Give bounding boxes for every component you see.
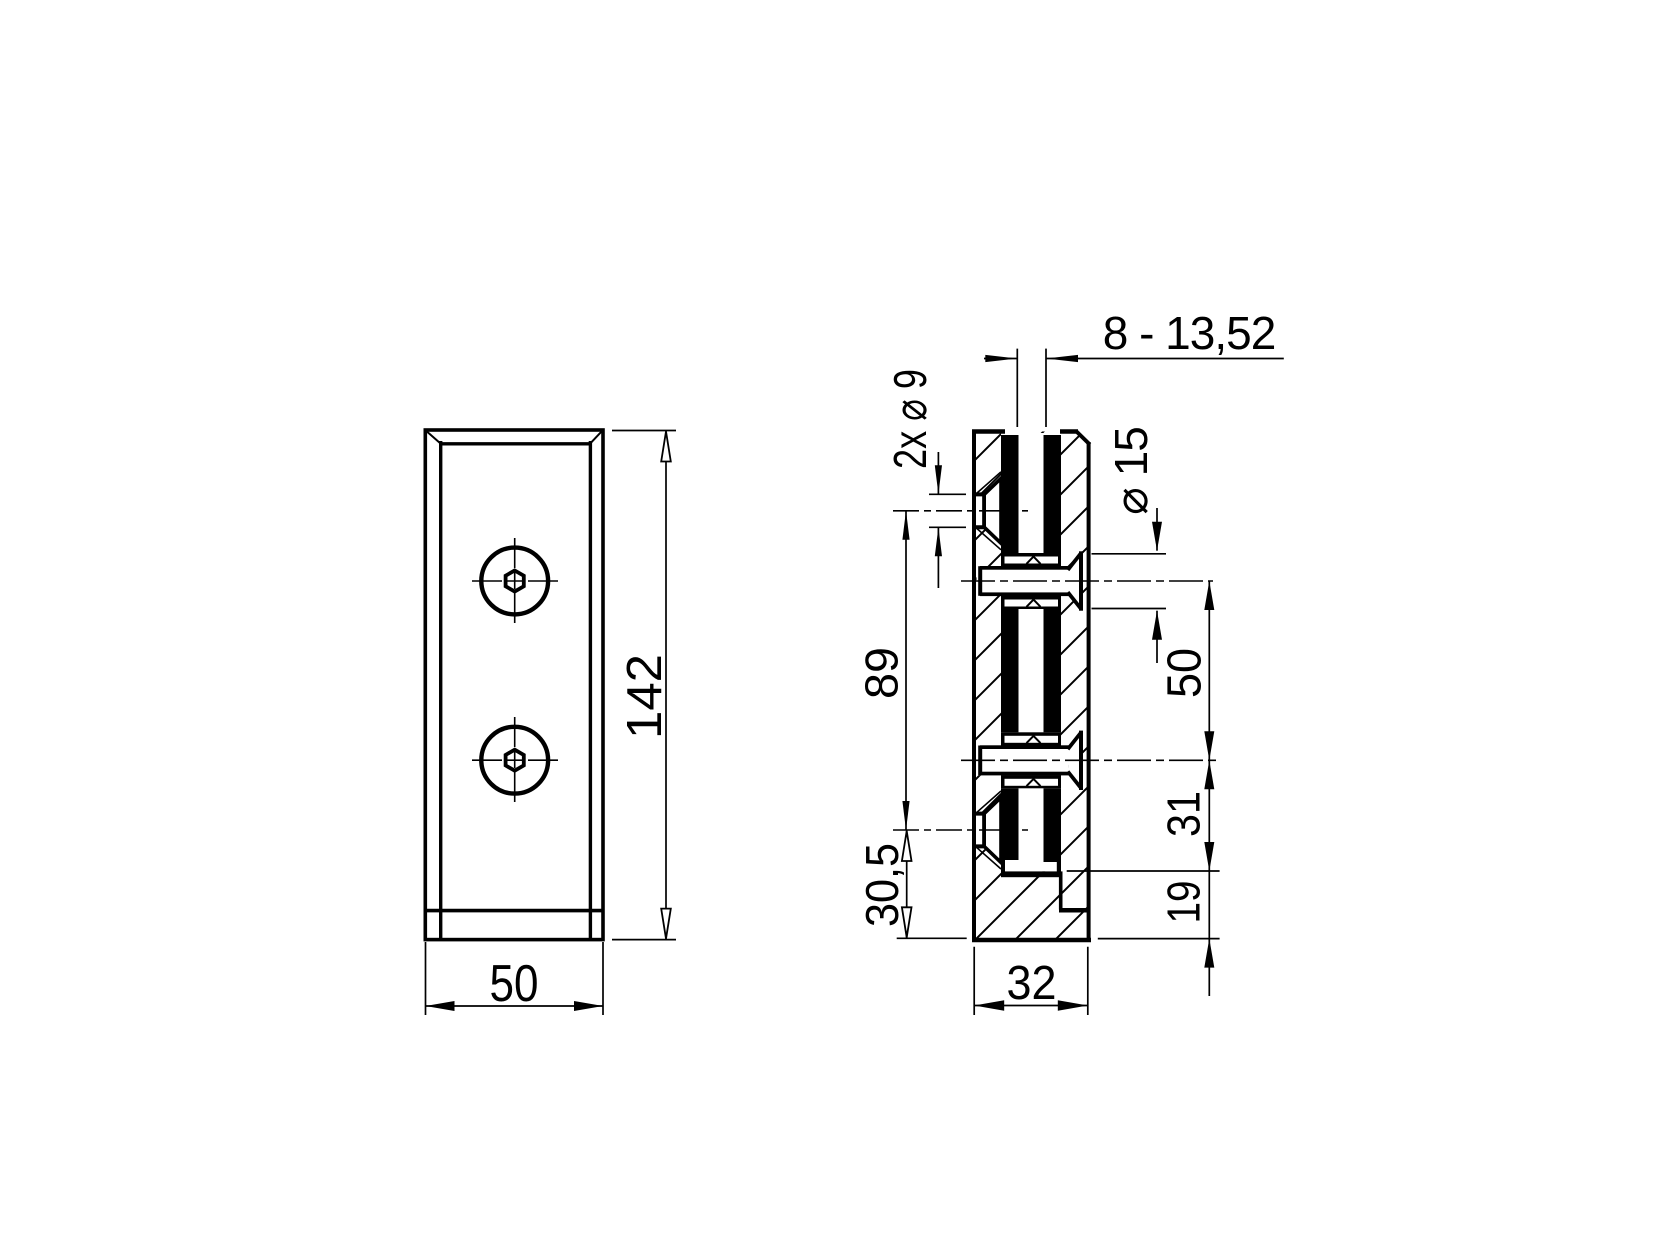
svg-text:⌀ 15: ⌀ 15 bbox=[1105, 427, 1157, 515]
svg-text:19: 19 bbox=[1158, 881, 1210, 924]
svg-text:8 - 13,52: 8 - 13,52 bbox=[1103, 307, 1276, 359]
svg-text:142: 142 bbox=[618, 654, 672, 739]
svg-text:32: 32 bbox=[1007, 957, 1057, 1010]
svg-text:89: 89 bbox=[856, 647, 908, 699]
svg-text:50: 50 bbox=[1159, 648, 1212, 698]
svg-text:30,5: 30,5 bbox=[856, 843, 908, 927]
svg-text:50: 50 bbox=[490, 955, 539, 1013]
svg-text:2x ⌀ 9: 2x ⌀ 9 bbox=[884, 369, 936, 469]
svg-text:31: 31 bbox=[1158, 791, 1210, 837]
